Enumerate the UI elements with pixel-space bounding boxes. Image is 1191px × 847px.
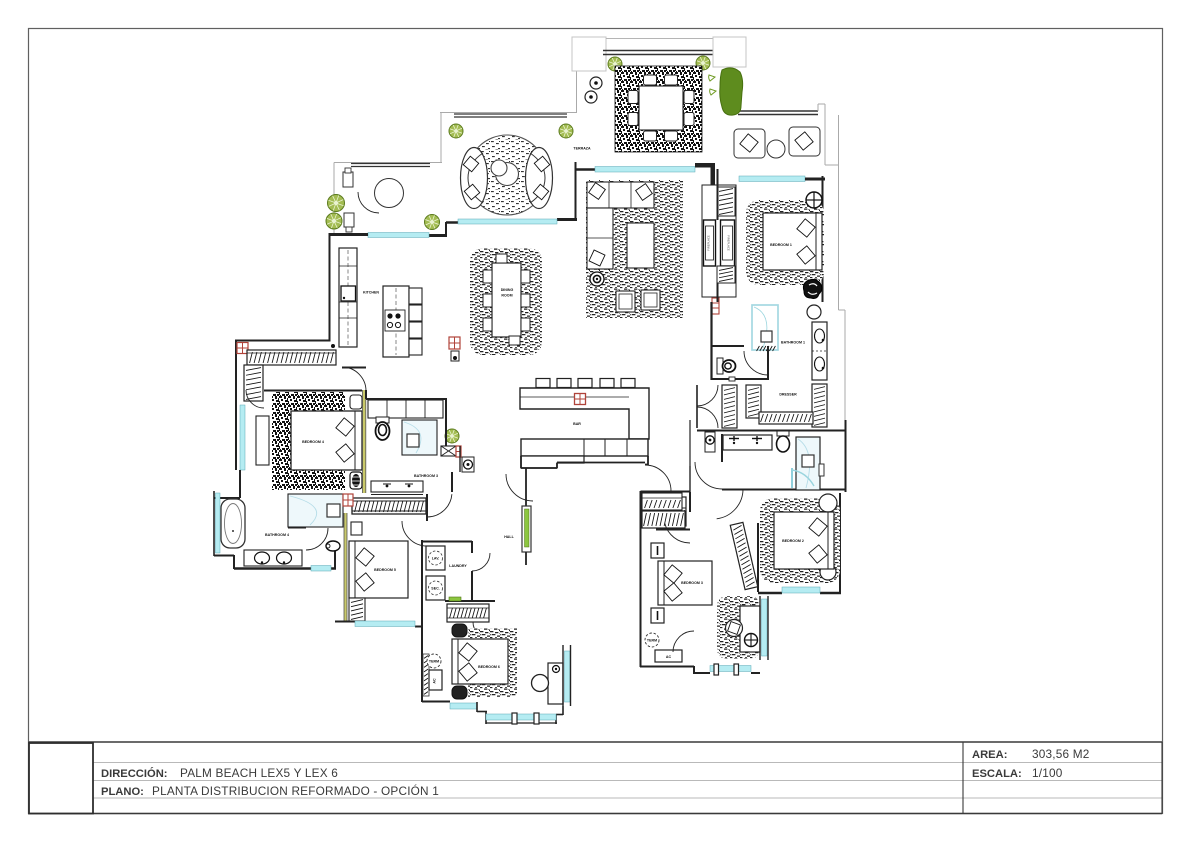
svg-text:BATHROOM 3: BATHROOM 3	[414, 474, 438, 478]
svg-text:1/100: 1/100	[1032, 766, 1063, 780]
svg-text:PLANTA DISTRIBUCION REFORMADO: PLANTA DISTRIBUCION REFORMADO - OPCIÓN 1	[152, 784, 439, 798]
svg-text:BEDROOM 1: BEDROOM 1	[770, 243, 792, 247]
svg-text:BATHROOM 1: BATHROOM 1	[781, 341, 805, 345]
svg-text:303,56 M2: 303,56 M2	[1032, 747, 1090, 761]
svg-text:PLANO:: PLANO:	[101, 786, 144, 798]
svg-text:PALM BEACH LEX5 Y LEX 6: PALM BEACH LEX5 Y LEX 6	[180, 766, 338, 780]
svg-text:FIREPLACE: FIREPLACE	[727, 235, 731, 251]
svg-text:SEC.: SEC.	[431, 587, 439, 591]
svg-text:LAV.: LAV.	[432, 557, 440, 561]
svg-text:BEDROOM 3: BEDROOM 3	[681, 581, 703, 585]
svg-text:AREA:: AREA:	[972, 749, 1007, 761]
svg-text:BEDROOM 4: BEDROOM 4	[302, 440, 324, 444]
svg-text:DRESSER: DRESSER	[779, 393, 797, 397]
svg-text:FIREPLACE: FIREPLACE	[707, 235, 711, 251]
svg-text:DINING: DINING	[501, 288, 514, 292]
svg-text:HALL: HALL	[504, 535, 514, 539]
svg-text:BEDROOM 6: BEDROOM 6	[478, 665, 500, 669]
svg-text:AC: AC	[433, 678, 437, 684]
svg-text:KITCHEN: KITCHEN	[363, 291, 379, 295]
svg-text:ROOM: ROOM	[501, 294, 512, 298]
svg-text:TERM: TERM	[647, 639, 657, 643]
svg-text:TERM: TERM	[429, 660, 439, 664]
svg-text:BATHROOM 4: BATHROOM 4	[265, 533, 289, 537]
svg-text:BAR: BAR	[573, 422, 581, 426]
svg-text:BEDROOM 2: BEDROOM 2	[782, 539, 804, 543]
svg-text:DIRECCIÓN:: DIRECCIÓN:	[101, 767, 168, 780]
svg-text:LAUNDRY: LAUNDRY	[449, 564, 467, 568]
svg-text:TERRAZA: TERRAZA	[573, 147, 591, 151]
svg-text:BEDROOM 5: BEDROOM 5	[374, 568, 396, 572]
svg-text:AC: AC	[666, 655, 672, 659]
svg-text:ESCALA:: ESCALA:	[972, 768, 1022, 780]
